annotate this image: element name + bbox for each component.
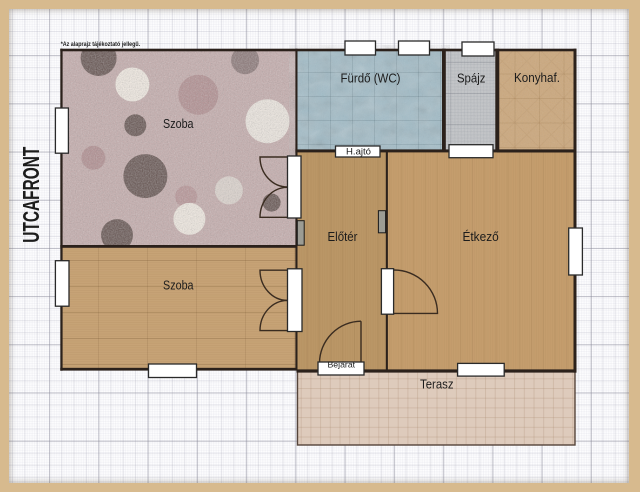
- svg-text:Szoba: Szoba: [163, 116, 194, 131]
- svg-text:Étkező: Étkező: [462, 229, 498, 244]
- svg-text:Előtér: Előtér: [328, 229, 359, 244]
- svg-text:*Az alaprajz tájékoztató jelle: *Az alaprajz tájékoztató jellegű.: [61, 41, 141, 48]
- svg-text:Szoba: Szoba: [163, 278, 194, 293]
- svg-text:Fürdő (WC): Fürdő (WC): [341, 70, 401, 85]
- svg-text:H.ajtó: H.ajtó: [346, 147, 371, 157]
- svg-text:Konyhaf.: Konyhaf.: [514, 70, 560, 85]
- svg-text:UTCAFRONT: UTCAFRONT: [18, 147, 44, 243]
- svg-text:Spájz: Spájz: [457, 70, 486, 85]
- svg-text:Terasz: Terasz: [420, 377, 454, 391]
- svg-text:Bejárat: Bejárat: [328, 359, 356, 369]
